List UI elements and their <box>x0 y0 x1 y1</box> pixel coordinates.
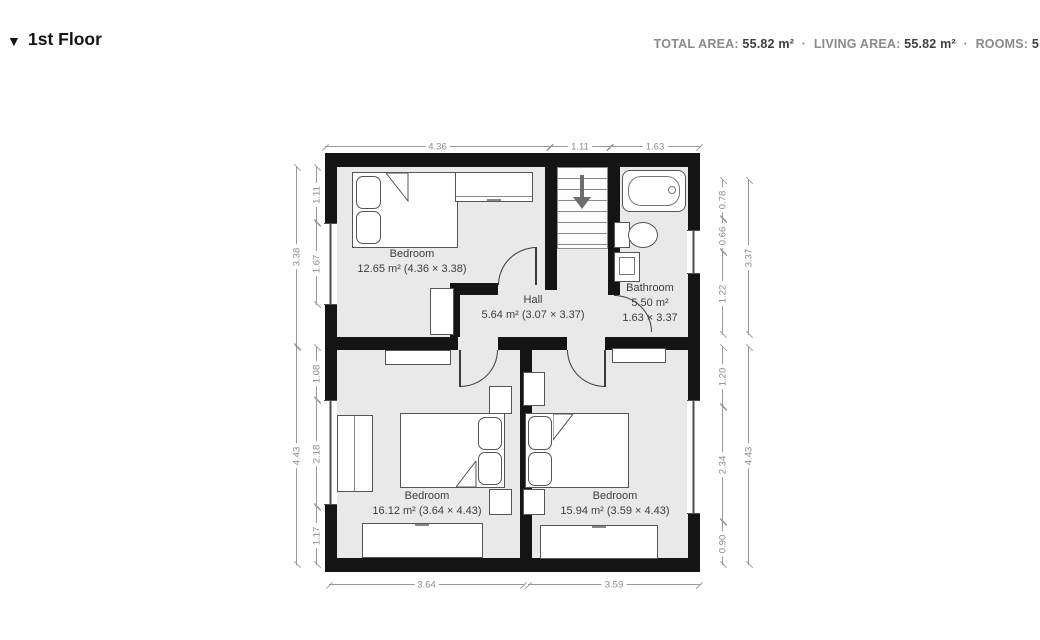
room-name: Bedroom <box>357 247 466 262</box>
room-details: 12.65 m² (4.36 × 3.38) <box>357 262 466 277</box>
blanket-fold <box>386 173 409 202</box>
dimension-left-inner: 1.67 <box>316 223 317 305</box>
dimension-top: 4.36 <box>325 146 550 147</box>
bathtub-drain <box>668 186 676 194</box>
pillow <box>478 417 502 450</box>
window <box>324 400 337 505</box>
living-area-label: LIVING AREA: <box>814 37 901 51</box>
room-details: 15.94 m² (3.59 × 4.43) <box>560 504 669 519</box>
wardrobe-shelf-line <box>456 196 532 197</box>
room-size: 1.63 × 3.37 <box>622 311 677 326</box>
dimension-right-inner: 0.78 <box>722 180 723 219</box>
handle-mark <box>487 199 501 201</box>
total-area-value: 55.82 m² <box>742 37 794 51</box>
stairs-down-arrow-icon <box>573 197 591 209</box>
collapse-triangle-icon[interactable]: ▼ <box>7 33 21 49</box>
dimension-right-outer: 3.37 <box>748 180 749 335</box>
dimension-left-inner: 1.17 <box>316 507 317 565</box>
blanket-fold <box>553 414 574 441</box>
shelf <box>612 348 666 363</box>
door-leaf <box>604 350 606 387</box>
dimension-right-outer: 4.43 <box>748 347 749 565</box>
rooms-label: ROOMS: <box>976 37 1029 51</box>
window <box>687 230 700 274</box>
dimension-left-outer: 4.43 <box>296 347 297 565</box>
handle-mark <box>592 526 606 528</box>
area-stats-bar: TOTAL AREA: 55.82 m² · LIVING AREA: 55.8… <box>654 37 1039 51</box>
toilet-bowl <box>628 222 658 248</box>
wardrobe-rail-line <box>354 416 355 491</box>
wall <box>325 153 337 572</box>
wall <box>545 167 557 290</box>
pillow <box>356 211 381 244</box>
pillow <box>528 452 552 486</box>
stats-separator: · <box>798 37 810 51</box>
dimension-right-inner: 1.20 <box>722 347 723 407</box>
stats-separator: · <box>960 37 972 51</box>
dimension-right-inner: 0.90 <box>722 522 723 565</box>
wall <box>325 337 458 350</box>
total-area-label: TOTAL AREA: <box>654 37 739 51</box>
sink-basin <box>619 257 635 275</box>
living-area-value: 55.82 m² <box>904 37 956 51</box>
floor-title[interactable]: 1st Floor <box>28 29 102 50</box>
nightstand <box>489 489 512 515</box>
window <box>687 400 700 514</box>
dimension-right-inner: 2.34 <box>722 407 723 522</box>
pillow <box>356 176 381 209</box>
room-label-bathroom: Bathroom 5.50 m² 1.63 × 3.37 <box>622 281 677 326</box>
door-leaf <box>459 350 461 387</box>
stairs-down-arrow-icon <box>580 175 584 198</box>
blanket-fold <box>456 461 477 488</box>
room-label-bedroom-top-left: Bedroom 12.65 m² (4.36 × 3.38) <box>357 247 466 277</box>
dimension-top: 1.63 <box>610 146 700 147</box>
room-name: Bedroom <box>372 489 481 504</box>
room-label-hall: Hall 5.64 m² (3.07 × 3.37) <box>481 293 584 323</box>
dimension-left-inner: 1.08 <box>316 347 317 400</box>
wall <box>325 558 700 572</box>
handle-mark <box>415 524 429 526</box>
nightstand <box>489 386 512 414</box>
wall <box>325 153 700 167</box>
dimension-right-inner: 1.22 <box>722 252 723 335</box>
closet <box>430 288 454 335</box>
rooms-value: 5 <box>1032 37 1039 51</box>
floorplan-page: ▼ 1st Floor TOTAL AREA: 55.82 m² · LIVIN… <box>0 0 1040 640</box>
shelf <box>385 350 451 365</box>
dresser <box>362 523 483 558</box>
dimension-bottom: 3.59 <box>528 584 700 585</box>
nightstand <box>523 489 545 515</box>
dimension-left-inner: 1.11 <box>316 167 317 223</box>
dimension-left-inner: 2.18 <box>316 400 317 507</box>
dimension-top: 1.11 <box>550 146 610 147</box>
wardrobe <box>337 415 373 492</box>
room-label-bedroom-bottom-right: Bedroom 15.94 m² (3.59 × 4.43) <box>560 489 669 519</box>
pillow <box>528 416 552 450</box>
pillow <box>478 452 502 485</box>
dimension-bottom: 3.64 <box>329 584 524 585</box>
dimension-right-inner: 0.66 <box>722 219 723 252</box>
room-name: Hall <box>481 293 584 308</box>
wardrobe <box>455 172 533 202</box>
nightstand <box>523 372 545 406</box>
window <box>324 223 337 305</box>
dimension-left-outer: 3.38 <box>296 167 297 347</box>
wall <box>498 337 567 350</box>
room-details: 5.64 m² (3.07 × 3.37) <box>481 308 584 323</box>
room-name: Bathroom <box>622 281 677 296</box>
door-leaf <box>535 247 537 285</box>
room-area: 5.50 m² <box>622 296 677 311</box>
dresser <box>540 525 658 559</box>
room-name: Bedroom <box>560 489 669 504</box>
room-details: 16.12 m² (3.64 × 4.43) <box>372 504 481 519</box>
room-label-bedroom-bottom-left: Bedroom 16.12 m² (3.64 × 4.43) <box>372 489 481 519</box>
